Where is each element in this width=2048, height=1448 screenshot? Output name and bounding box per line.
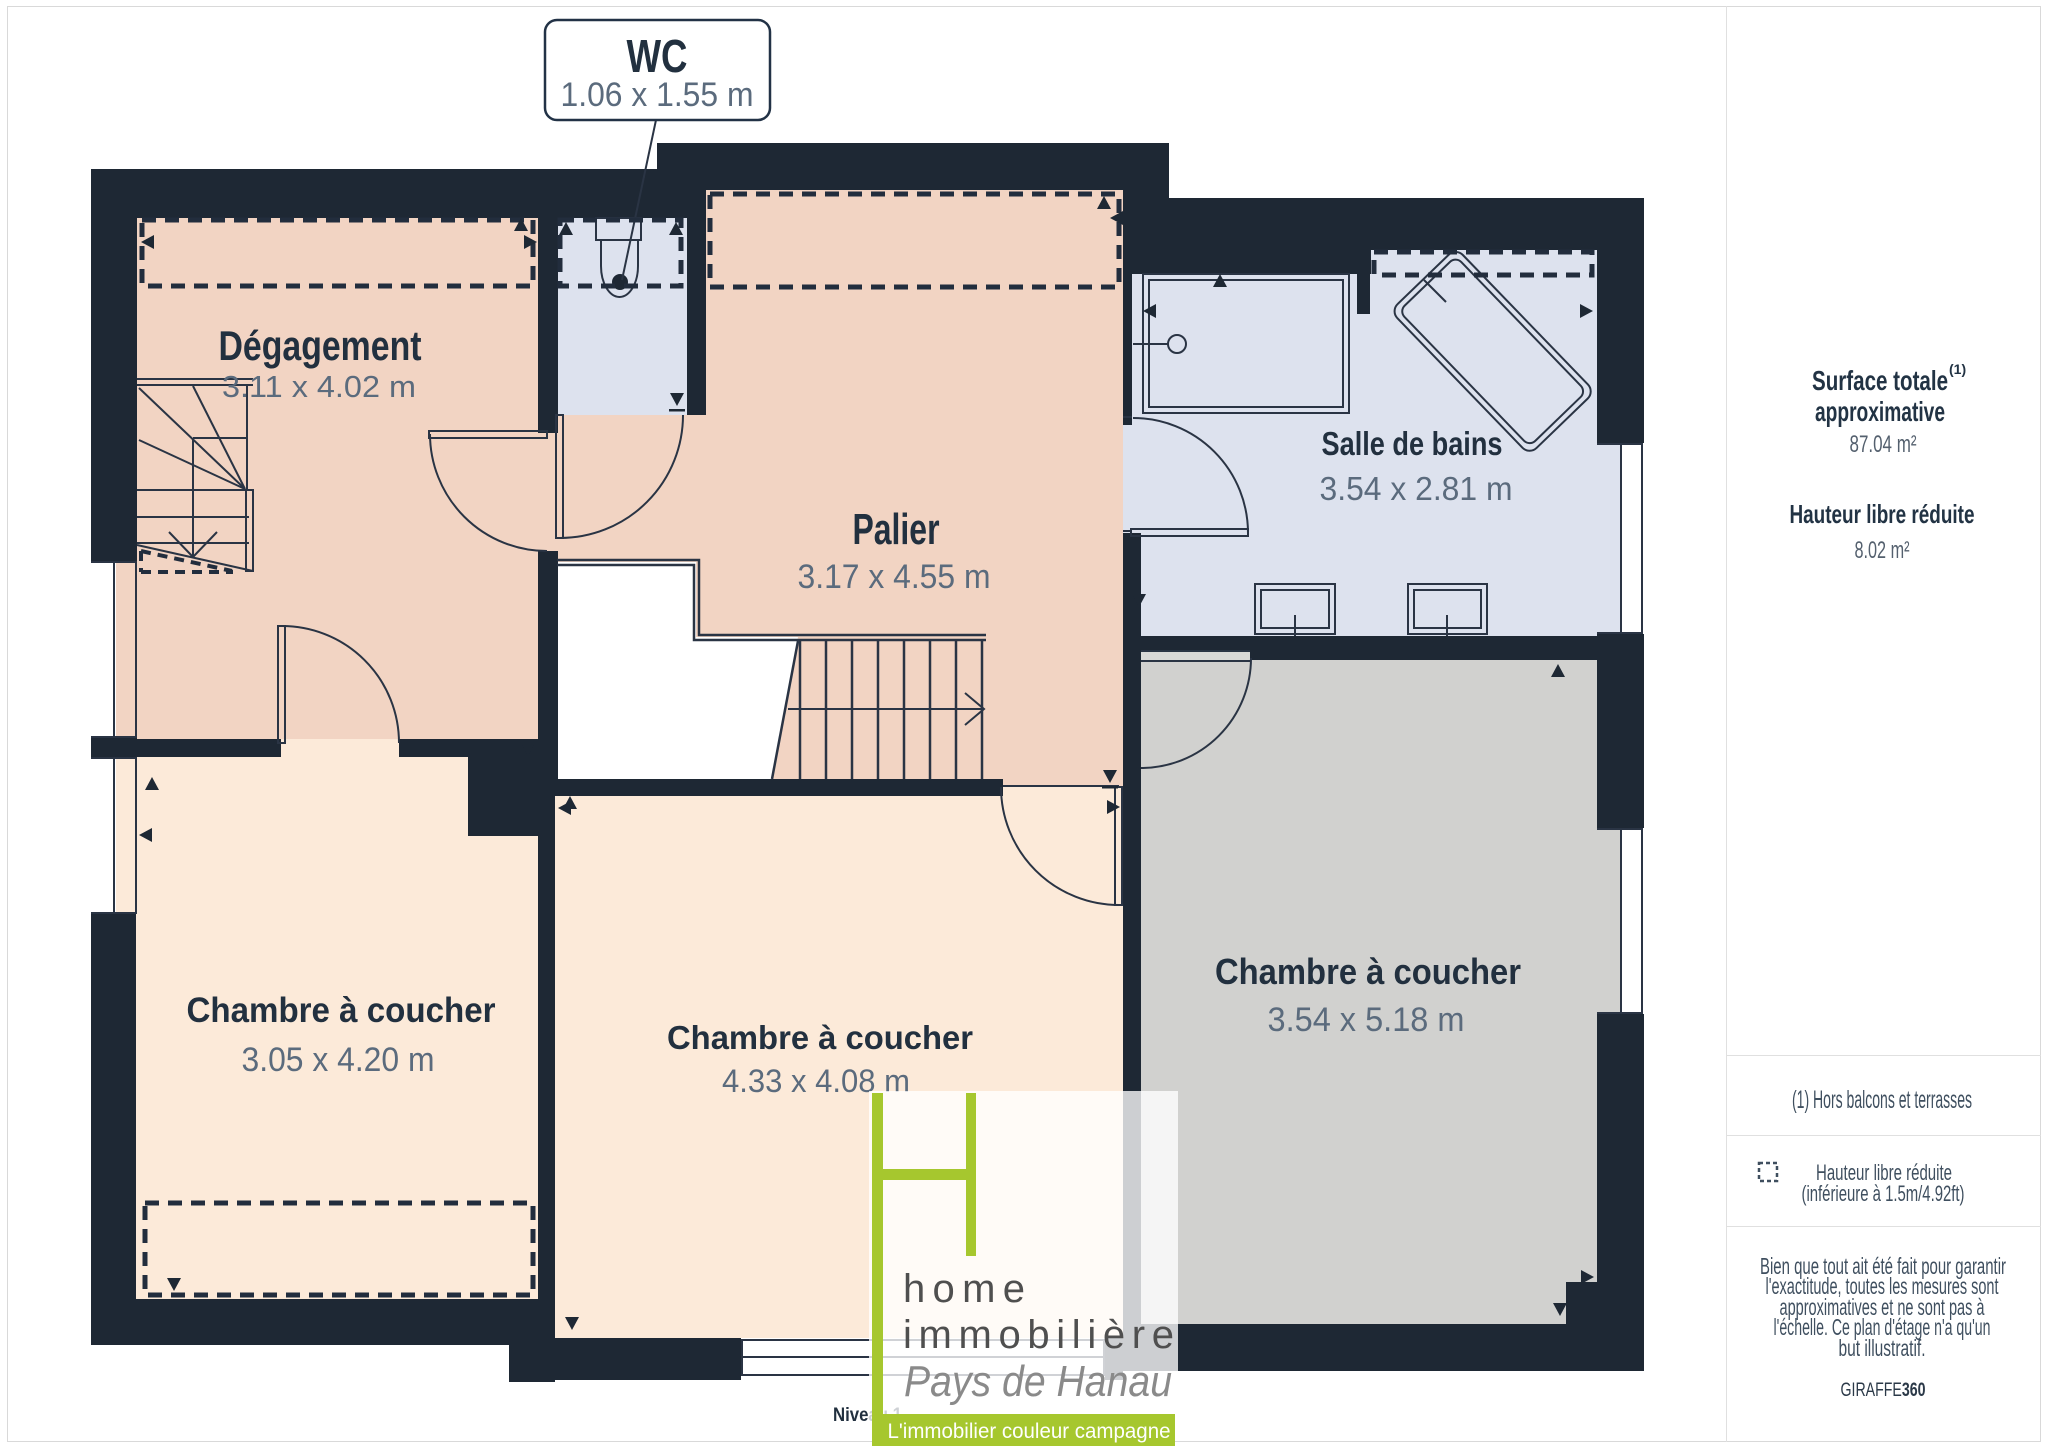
svg-text:GIRAFFE360: GIRAFFE360 [1841,1380,1926,1401]
svg-text:Palier: Palier [853,505,940,554]
svg-text:Pays de Hanau: Pays de Hanau [904,1357,1172,1406]
svg-text:3.54 x 2.81 m: 3.54 x 2.81 m [1320,470,1513,507]
svg-text:3.11 x 4.02 m: 3.11 x 4.02 m [222,369,416,404]
svg-text:3.17 x 4.55 m: 3.17 x 4.55 m [798,558,991,596]
svg-text:Salle de bains: Salle de bains [1322,425,1503,462]
svg-text:WC: WC [627,30,688,82]
svg-text:1.06 x 1.55 m: 1.06 x 1.55 m [561,76,754,114]
svg-text:3.05 x 4.20 m: 3.05 x 4.20 m [242,1041,435,1079]
svg-text:(1) Hors balcons et terrasses: (1) Hors balcons et terrasses [1792,1086,1972,1114]
svg-text:Surface totale: Surface totale [1812,365,1948,396]
svg-text:(inférieure à 1.5m/4.92ft): (inférieure à 1.5m/4.92ft) [1802,1181,1965,1206]
svg-text:approximative: approximative [1815,396,1945,427]
svg-text:(1): (1) [1949,361,1966,377]
svg-text:but illustratif.: but illustratif. [1839,1335,1926,1361]
svg-text:Chambre à coucher: Chambre à coucher [667,1019,973,1056]
svg-text:87.04 m²: 87.04 m² [1850,431,1917,458]
svg-text:3.54 x 5.18 m: 3.54 x 5.18 m [1268,1001,1465,1039]
svg-text:8.02 m²: 8.02 m² [1855,537,1910,564]
svg-text:home: home [903,1267,1025,1311]
svg-text:Chambre à coucher: Chambre à coucher [187,991,496,1030]
svg-text:Chambre à coucher: Chambre à coucher [1215,951,1521,992]
svg-text:L'immobilier couleur campagne: L'immobilier couleur campagne [888,1420,1171,1443]
svg-text:Hauteur libre réduite: Hauteur libre réduite [1790,499,1975,529]
svg-text:immobilière: immobilière [903,1313,1174,1357]
svg-text:Dégagement: Dégagement [219,322,422,369]
